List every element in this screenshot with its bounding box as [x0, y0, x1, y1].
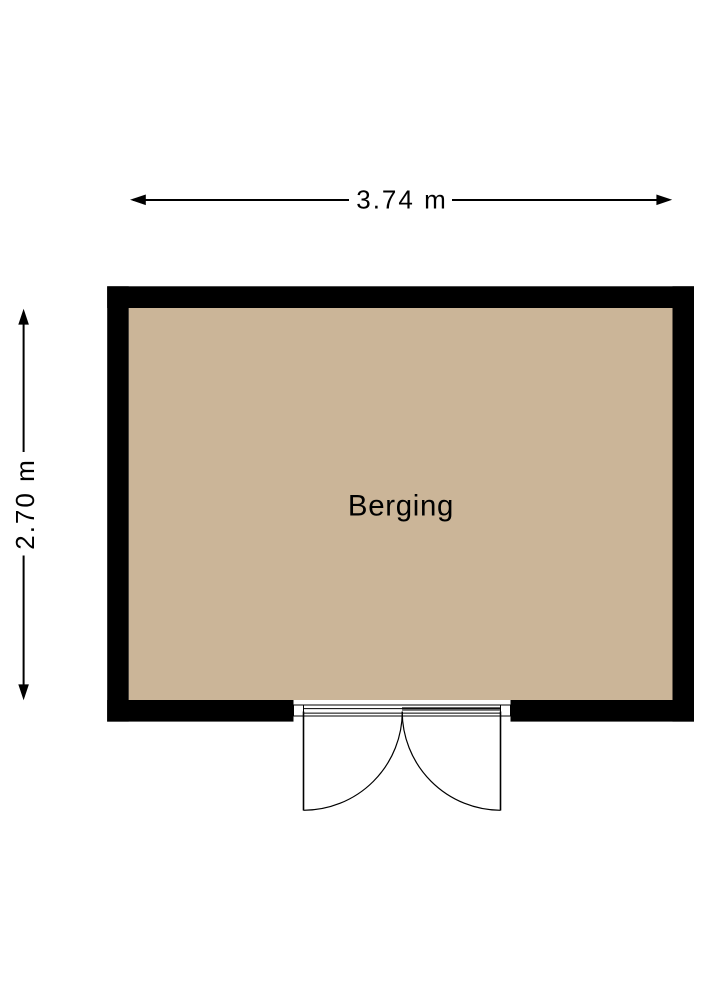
svg-text:2.70 m: 2.70 m — [10, 458, 40, 550]
svg-text:Berging: Berging — [348, 489, 454, 522]
svg-text:3.74 m: 3.74 m — [356, 185, 448, 215]
